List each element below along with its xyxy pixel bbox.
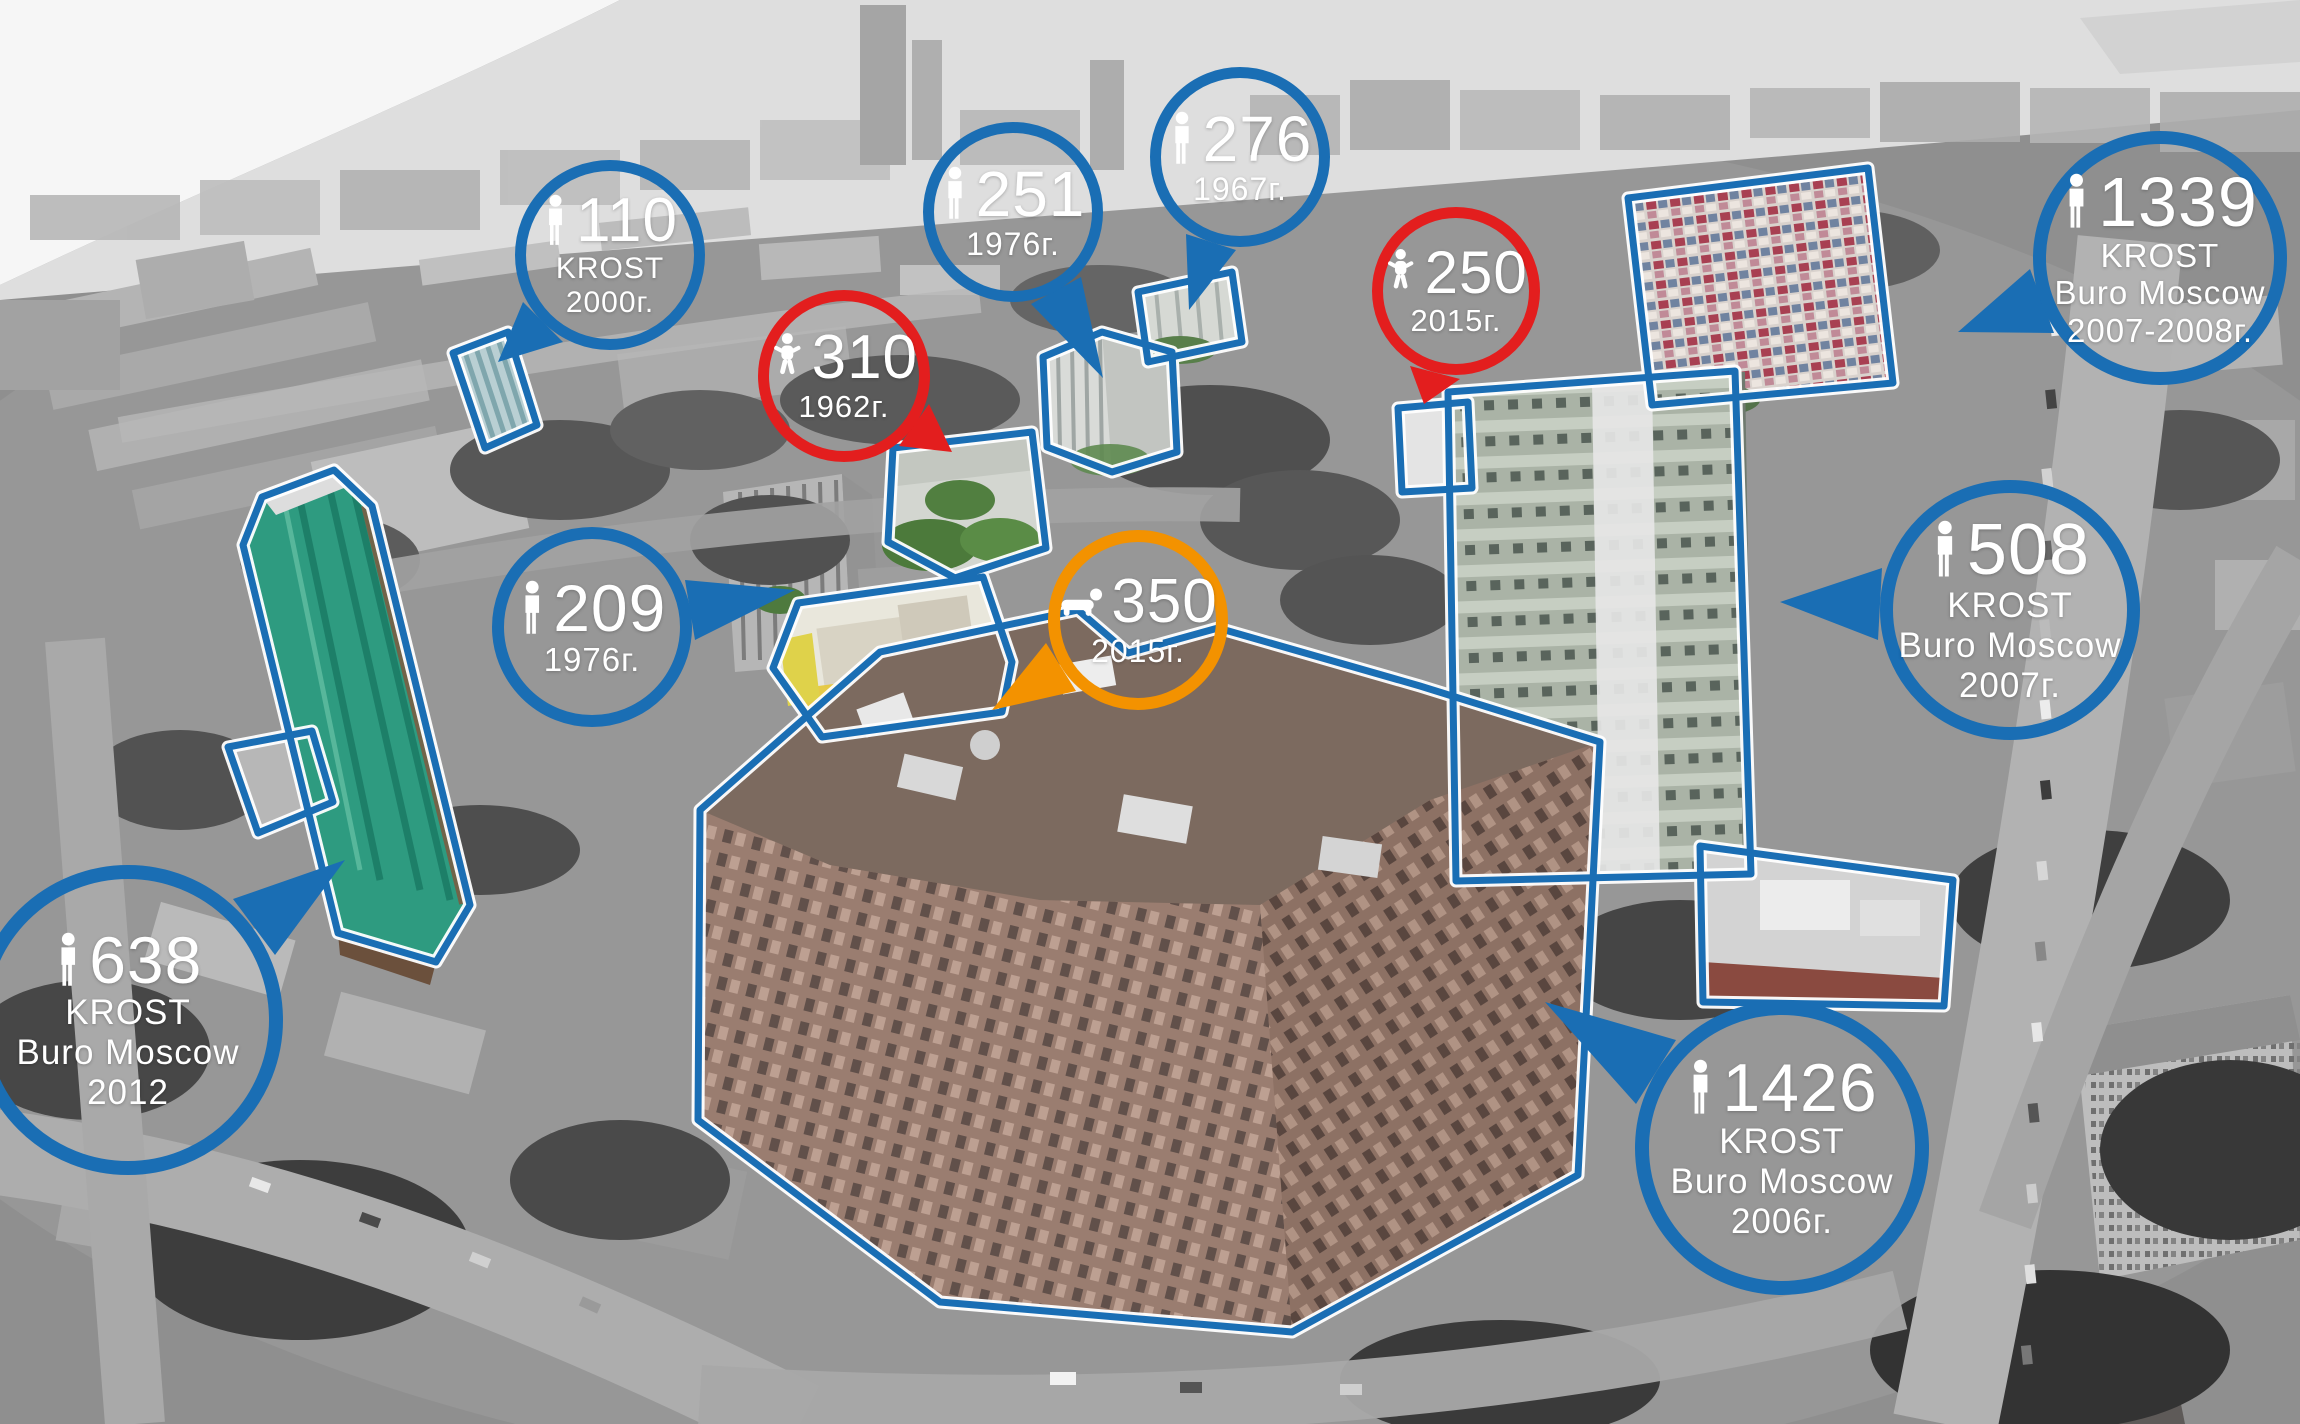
person-icon [941,166,969,222]
person-icon [1686,1059,1715,1117]
callout-310: 310 1962г. [758,290,930,462]
callout-350: 350 2015г. [1048,530,1228,710]
person-icon [2062,173,2091,231]
callout-209: 209 1976г. [492,527,692,727]
person-icon [1168,111,1196,167]
callout-1426: 1426 KROST Buro Moscow 2006г. [1635,1001,1929,1295]
baby-crawling-icon [1058,587,1104,617]
person-icon [542,194,569,248]
aerial-infographic: 110 KROST 2000г. 251 1976г. 276 1967г. 3… [0,0,2300,1424]
person-icon [54,932,83,989]
callout-1339: 1339 KROST Buro Moscow 2007-2008г. [2033,131,2287,385]
callout-276: 276 1967г. [1150,67,1330,247]
person-icon [518,580,547,637]
callout-110: 110 KROST 2000г. [515,160,705,350]
person-icon [1930,520,1960,580]
child-icon [1384,248,1417,298]
callout-250: 250 2015г. [1372,207,1540,375]
child-icon [770,332,805,384]
callout-251: 251 1976г. [923,122,1103,302]
callout-508: 508 KROST Buro Moscow 2007г. [1880,480,2140,740]
